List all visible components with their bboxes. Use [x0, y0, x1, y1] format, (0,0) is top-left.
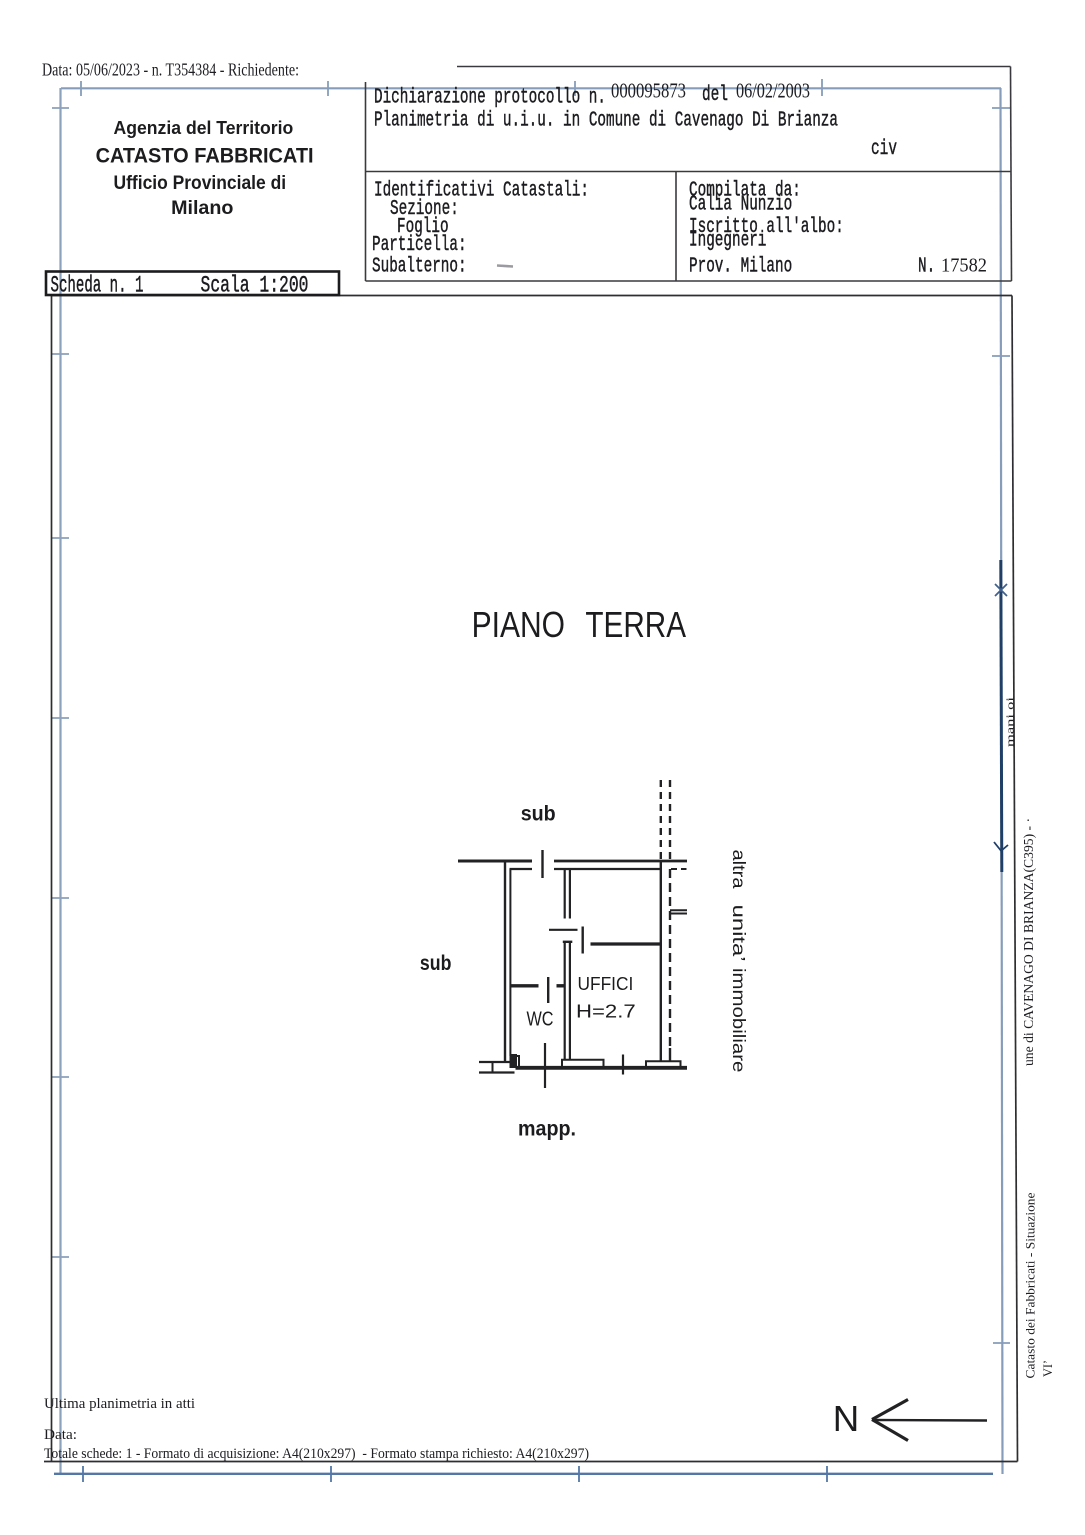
svg-text:Milano: Milano	[171, 197, 233, 219]
svg-text:UFFICI: UFFICI	[578, 973, 634, 994]
svg-text:unita’: unita’	[729, 905, 749, 962]
svg-text:Particella:: Particella:	[372, 234, 467, 257]
svg-text:Planimetria di u.i.u. in Comun: Planimetria di u.i.u. in Comune di Caven…	[374, 110, 838, 133]
svg-text:mapp.: mapp.	[518, 1118, 576, 1141]
svg-text:Ingegneri: Ingegneri	[689, 230, 766, 253]
svg-text:Scheda n. 1: Scheda n. 1	[51, 273, 144, 299]
svg-text:06/02/2003: 06/02/2003	[736, 79, 810, 103]
svg-text:Dichiarazione protocollo n.: Dichiarazione protocollo n.	[374, 87, 606, 110]
svg-text:CATASTO FABBRICATI: CATASTO FABBRICATI	[96, 144, 314, 168]
svg-text:une di CAVENAGO DI BRIANZA(C39: une di CAVENAGO DI BRIANZA(C395) - ·	[1022, 818, 1037, 1066]
svg-text:Subalterno:: Subalterno:	[372, 256, 467, 279]
svg-text:mani oi: mani oi	[1005, 697, 1017, 747]
svg-text:H=2.7: H=2.7	[576, 1001, 636, 1022]
svg-text:Prov. Milano: Prov. Milano	[689, 256, 792, 279]
svg-text:000095873: 000095873	[611, 79, 686, 103]
svg-text:civ: civ	[871, 138, 897, 161]
svg-text:WC: WC	[527, 1009, 554, 1031]
svg-text:Catasto dei Fabbricati - Situa: Catasto dei Fabbricati - Situazione	[1023, 1192, 1038, 1378]
svg-text:sub: sub	[521, 803, 556, 826]
svg-text:del: del	[702, 84, 728, 107]
svg-text:immobiliare: immobiliare	[729, 968, 749, 1072]
svg-text:Agenzia del Territorio: Agenzia del Territorio	[114, 118, 294, 138]
svg-text:TERRA: TERRA	[585, 604, 686, 645]
svg-text:Totale schede: 1 - Formato di: Totale schede: 1 - Formato di acquisizio…	[44, 1446, 589, 1462]
svg-text:Scala 1:200: Scala 1:200	[201, 273, 309, 299]
svg-text:Data:: Data:	[44, 1427, 77, 1443]
svg-text:altra: altra	[729, 850, 749, 889]
svg-text:N.: N.	[918, 256, 935, 279]
svg-text:Ufficio Provinciale di: Ufficio Provinciale di	[114, 172, 287, 194]
svg-text:VI’: VI’	[1040, 1360, 1055, 1377]
svg-text:sub: sub	[420, 952, 452, 975]
svg-text:Ultima planimetria in atti: Ultima planimetria in atti	[44, 1396, 195, 1412]
svg-text:PIANO: PIANO	[472, 604, 565, 645]
svg-text:Data: 05/06/2023 - n. T354384: Data: 05/06/2023 - n. T354384 - Richiede…	[42, 60, 299, 80]
svg-text:Calia Nunzio: Calia Nunzio	[689, 194, 792, 217]
svg-text:N: N	[833, 1398, 860, 1439]
svg-text:17582: 17582	[941, 255, 987, 277]
